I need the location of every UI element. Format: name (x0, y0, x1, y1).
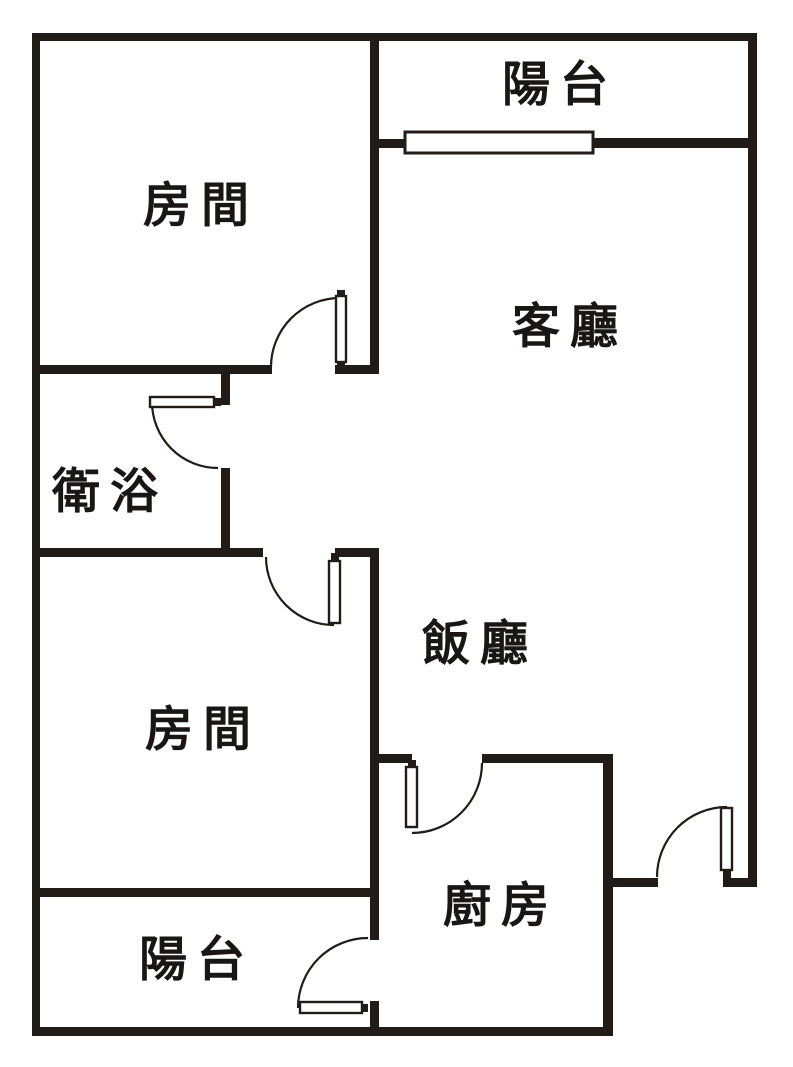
room-label-living-room: 客廳 (512, 301, 628, 354)
door-leaf-entrance (721, 808, 732, 870)
door-arc-bedroom-1 (271, 298, 340, 367)
door-arc-entrance (657, 807, 727, 877)
room-label-dining-room: 飯廳 (422, 618, 538, 671)
wall-outer-wall-top (32, 33, 757, 41)
wall-bedroom2-south-wall (32, 888, 379, 897)
wall-core-wall-lower (370, 548, 379, 940)
walls-layer (32, 33, 757, 1036)
room-label-balcony-bottom: 陽台 (139, 934, 255, 987)
wall-outer-wall-bottom (32, 1027, 613, 1036)
wall-entry-wall-left-seg (613, 878, 658, 887)
wall-balcony-sill-right (592, 138, 748, 148)
room-label-bathroom: 衛浴 (51, 466, 168, 519)
wall-bedroom2-north-wall-right (335, 548, 379, 557)
door-arc-bedroom-2 (266, 557, 334, 625)
wall-balcony-sill-left-stub (379, 139, 406, 148)
wall-kitchen-north-wall-left (375, 754, 412, 763)
floor-plan-image: 陽台 房間 客廳 衛浴 飯廳 房間 廚房 陽台 (0, 0, 793, 1067)
wall-entry-wall-right-seg (723, 878, 757, 887)
door-arc-balcony-bottom (298, 938, 368, 1008)
windows-layer (405, 132, 593, 153)
wall-bathroom-east-wall-lower (221, 468, 230, 557)
door-leaf-bedroom-2 (329, 561, 340, 623)
wall-outer-wall-right (748, 33, 757, 887)
room-label-balcony-top: 陽台 (502, 59, 618, 112)
wall-outer-wall-left (32, 33, 40, 1036)
room-label-bedroom-1: 房間 (143, 180, 259, 233)
floor-plan-drawing: 陽台 房間 客廳 衛浴 飯廳 房間 廚房 陽台 (0, 0, 793, 1067)
room-label-bedroom-2: 房間 (145, 704, 261, 757)
wall-core-wall-upper (370, 33, 379, 374)
window-symbol-balcony-window (405, 132, 593, 153)
door-leaf-balcony-bottom (300, 1002, 362, 1013)
wall-core-wall-stub (370, 1001, 379, 1036)
labels-layer: 陽台 房間 客廳 衛浴 飯廳 房間 廚房 陽台 (51, 59, 628, 987)
wall-bathroom-south-wall (32, 548, 263, 557)
door-arc-kitchen (412, 763, 482, 833)
room-label-kitchen: 廚房 (443, 879, 559, 933)
door-leaf-bathroom (150, 397, 214, 407)
wall-kitchen-east-wall (603, 754, 613, 1036)
wall-bedroom1-south-wall-right (335, 365, 379, 374)
door-arc-bathroom (152, 402, 218, 468)
door-leaf-bedroom-1 (336, 296, 346, 362)
wall-bedroom1-south-wall-left (32, 365, 272, 374)
wall-bathroom-east-wall-upper (221, 365, 230, 405)
door-leaf-kitchen (406, 767, 417, 827)
wall-kitchen-north-wall-right (482, 754, 613, 763)
